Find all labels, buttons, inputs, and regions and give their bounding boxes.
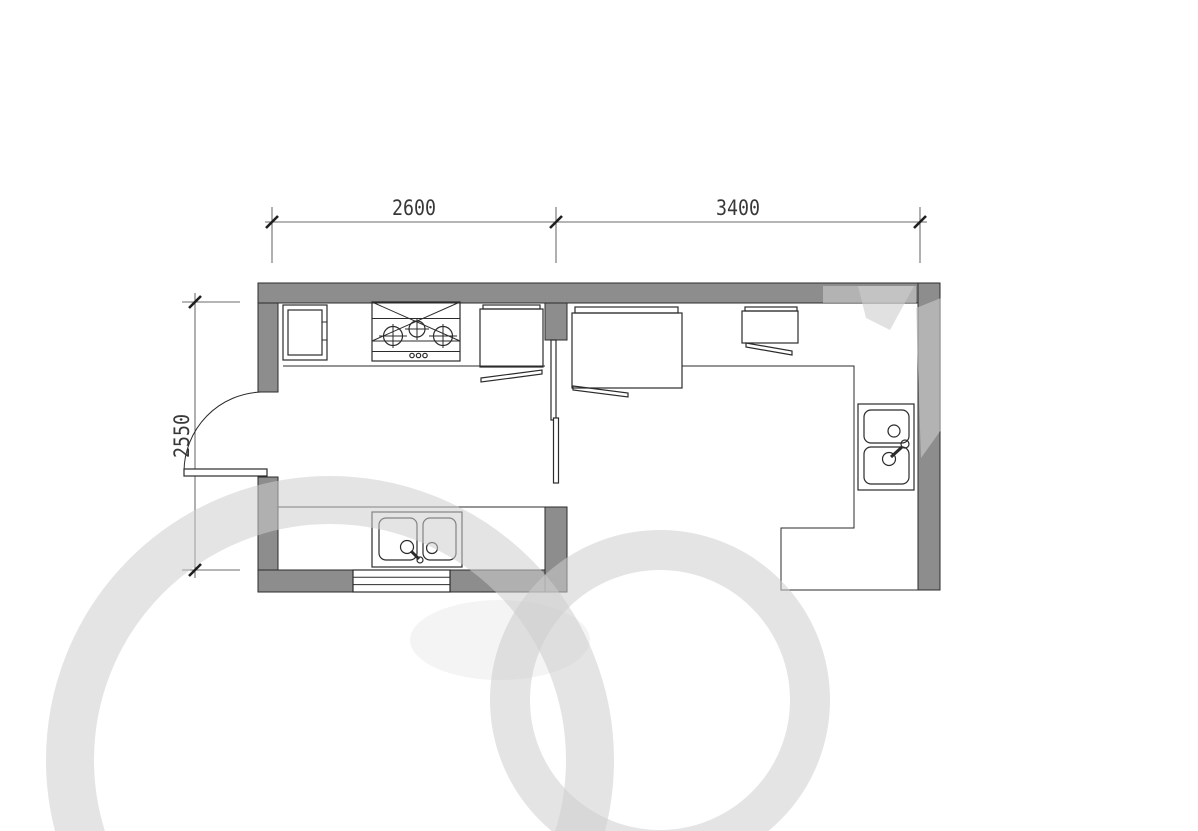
sink-basin-top (864, 410, 909, 443)
kitchen-sink-icon (372, 512, 462, 567)
cabinet-body (742, 311, 798, 343)
dining-sink-icon (858, 404, 914, 490)
sink-drain (427, 543, 438, 554)
watermark (70, 286, 941, 831)
stove-knob (416, 353, 420, 357)
wall-right (918, 283, 940, 590)
cabinet-lid (745, 307, 797, 311)
wall-partition-bottom-stub (545, 507, 567, 592)
watermark-arc (70, 500, 590, 831)
small-cabinet (742, 307, 798, 355)
dimension-top: 2600 3400 (265, 196, 927, 263)
door-swing-arc (184, 392, 261, 471)
refrigerator-inner (288, 310, 322, 355)
wall-left-upper (258, 303, 278, 392)
cabinet-body (572, 313, 682, 388)
stove-knob (410, 353, 414, 357)
sliding-door-panel (551, 340, 556, 420)
floor-plan-canvas: 2600 3400 2550 (0, 0, 1198, 831)
sliding-door-panel (554, 418, 559, 483)
cabinet-open-door (481, 370, 542, 382)
walls (258, 283, 940, 592)
door-leaf (184, 469, 267, 476)
kitchen-wall-cabinet (480, 305, 543, 382)
kitchen-room (278, 302, 545, 567)
stove-knob (423, 353, 427, 357)
wall-top (258, 283, 940, 303)
wall-partition-top-stub (545, 303, 567, 340)
cabinet-body (480, 309, 543, 367)
dining-room (572, 307, 918, 590)
dimension-label-2600: 2600 (392, 196, 436, 220)
sink-drain (888, 425, 900, 437)
l-counter-edge (682, 366, 918, 590)
sliding-door (551, 340, 559, 483)
dimension-left: 2550 (170, 293, 240, 578)
dimension-label-3400: 3400 (716, 196, 760, 220)
watermark-blob (410, 600, 590, 680)
cabinet-open-door (746, 343, 792, 355)
window-frame (353, 570, 450, 592)
refrigerator (283, 305, 327, 360)
gas-stove-icon (372, 302, 460, 361)
faucet-lever (891, 447, 902, 457)
wall-bottom-left (258, 570, 353, 592)
faucet-head (883, 453, 896, 466)
cabinet-lid (575, 307, 678, 313)
sink-basin-right (423, 518, 456, 560)
entry-door (184, 392, 267, 476)
cabinet-lid (483, 305, 540, 309)
dimension-label-2550: 2550 (170, 414, 194, 458)
faucet-base (901, 440, 909, 448)
sink-basin-left (379, 518, 417, 560)
window (353, 570, 450, 592)
large-cabinet (572, 307, 682, 397)
refrigerator-outline (283, 305, 327, 360)
